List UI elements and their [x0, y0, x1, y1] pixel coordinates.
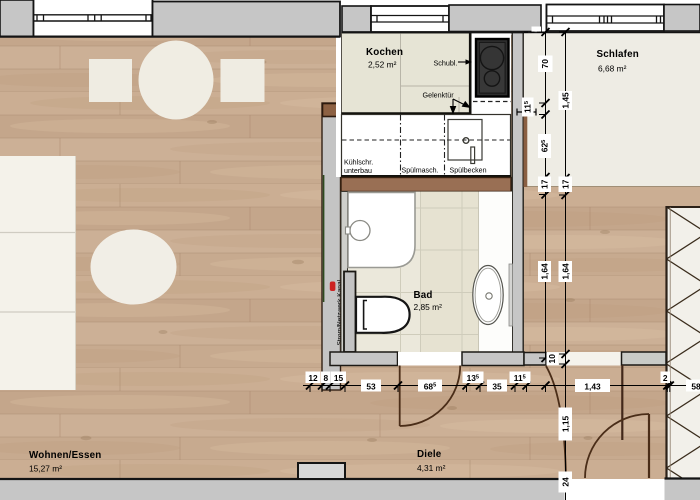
svg-text:2,52 m²: 2,52 m² — [368, 60, 397, 70]
svg-text:1,45: 1,45 — [560, 92, 570, 109]
svg-text:Schubl.: Schubl. — [434, 59, 458, 68]
svg-text:35: 35 — [492, 381, 502, 391]
svg-text:53: 53 — [366, 381, 376, 391]
svg-text:Schlafen: Schlafen — [597, 49, 639, 60]
svg-text:10: 10 — [547, 354, 557, 364]
svg-text:17: 17 — [540, 179, 550, 189]
svg-text:4,31 m²: 4,31 m² — [417, 463, 446, 473]
svg-text:12: 12 — [308, 373, 318, 383]
svg-text:15,27 m²: 15,27 m² — [29, 464, 62, 474]
svg-text:58: 58 — [691, 381, 700, 391]
svg-text:Diele: Diele — [417, 449, 442, 460]
svg-text:2: 2 — [663, 373, 668, 383]
svg-text:Bad: Bad — [414, 290, 433, 301]
svg-text:1,15: 1,15 — [560, 416, 570, 433]
svg-text:Spülmasch.: Spülmasch. — [402, 167, 439, 175]
svg-text:2,85 m²: 2,85 m² — [414, 302, 443, 312]
svg-text:Wohnen/Essen: Wohnen/Essen — [29, 450, 101, 461]
svg-text:15: 15 — [334, 373, 344, 383]
svg-text:unterbau: unterbau — [344, 167, 372, 175]
svg-text:Spülbecken: Spülbecken — [450, 167, 487, 175]
svg-text:17: 17 — [560, 179, 570, 189]
svg-text:Kühlschr.: Kühlschr. — [344, 159, 373, 167]
svg-text:8: 8 — [323, 373, 328, 383]
svg-text:6,68 m²: 6,68 m² — [598, 64, 627, 74]
svg-text:1,43: 1,43 — [584, 382, 601, 392]
svg-text:1,64: 1,64 — [560, 263, 570, 280]
svg-text:24: 24 — [560, 477, 570, 487]
svg-text:1,64: 1,64 — [540, 263, 550, 280]
svg-text:70: 70 — [540, 59, 550, 69]
svg-text:Kochen: Kochen — [366, 47, 403, 58]
svg-text:Gelenktür: Gelenktür — [423, 91, 455, 100]
